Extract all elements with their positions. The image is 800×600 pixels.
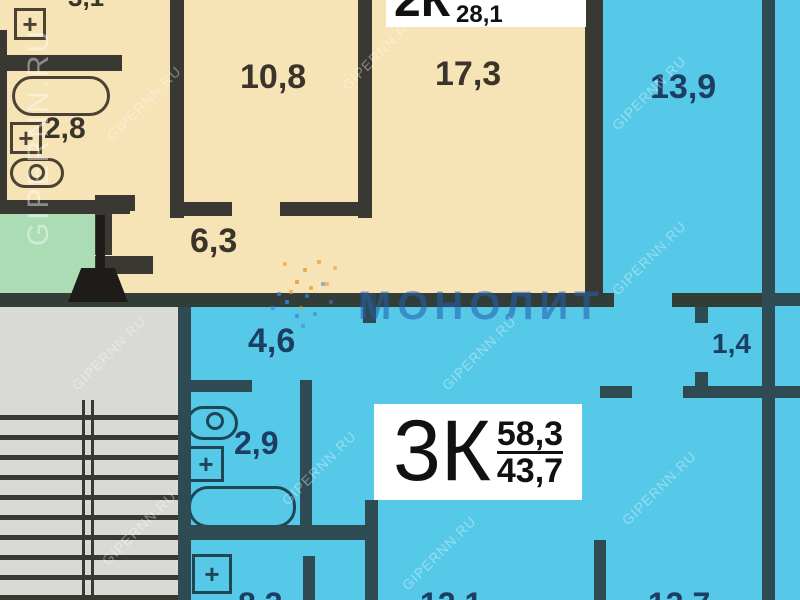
room-label-partial-bottom-right: 13,7 bbox=[648, 586, 710, 600]
wall bbox=[683, 386, 762, 398]
wall bbox=[600, 386, 632, 398]
room-label-6-3: 6,3 bbox=[190, 222, 237, 261]
apartment-2k-name: 2К bbox=[394, 0, 450, 25]
stair-railing-right bbox=[91, 400, 94, 600]
door-post bbox=[363, 293, 376, 323]
sink-cross-glyph: + bbox=[22, 9, 37, 40]
sink-icon: + bbox=[14, 8, 46, 40]
apartment-3k-name: 3К bbox=[393, 413, 491, 490]
wall bbox=[365, 500, 378, 600]
apartment-2k-badge: 2К 28,1 bbox=[386, 0, 586, 27]
sink-cross-glyph: + bbox=[18, 123, 33, 154]
wall bbox=[170, 0, 184, 218]
wall bbox=[170, 202, 232, 216]
wall bbox=[585, 0, 603, 300]
toilet-bowl-icon bbox=[28, 164, 45, 181]
wall bbox=[280, 202, 372, 216]
room-label-13-9: 13,9 bbox=[650, 68, 716, 107]
wall bbox=[775, 293, 800, 306]
wall bbox=[178, 307, 191, 600]
site-watermark: GIPERNN.RU bbox=[439, 313, 520, 394]
room-label-partial-top: 3,1 bbox=[68, 0, 104, 13]
room-label-2-9: 2,9 bbox=[234, 425, 278, 462]
room-label-1-4: 1,4 bbox=[712, 328, 751, 360]
site-watermark: GIPERNN.RU bbox=[399, 513, 480, 594]
site-watermark: GIPERNN.RU bbox=[609, 218, 690, 299]
wall bbox=[183, 525, 378, 540]
wall bbox=[762, 0, 775, 600]
bathtub-icon bbox=[188, 486, 296, 528]
kitchen-sink-icon: + bbox=[192, 554, 232, 594]
sink-cross-glyph: + bbox=[204, 559, 219, 590]
wall bbox=[303, 556, 315, 600]
room-label-partial-bottom-left: 8,3 bbox=[238, 586, 282, 600]
stair-steps bbox=[0, 400, 178, 600]
wall bbox=[186, 380, 252, 392]
floor-plan: + + + + 10,8 17,3 13,9 2,8 6,3 4,6 2,9 1… bbox=[0, 0, 800, 600]
sink-icon: + bbox=[188, 446, 224, 482]
room-label-4-6: 4,6 bbox=[248, 322, 295, 361]
bathtub-icon bbox=[12, 76, 110, 116]
wall-stub bbox=[695, 307, 708, 323]
room-label-partial-bottom-middle: 12,1 bbox=[420, 586, 482, 600]
wall bbox=[775, 386, 800, 398]
wall-divider bbox=[672, 293, 762, 307]
apartment-3k-living-area: 43,7 bbox=[497, 454, 563, 488]
site-watermark: GIPERNN.RU bbox=[619, 448, 700, 529]
sink-cross-glyph: + bbox=[198, 449, 213, 480]
wall bbox=[95, 195, 135, 211]
stair-railing-left bbox=[82, 400, 85, 600]
sink-icon: + bbox=[10, 122, 42, 154]
wall bbox=[358, 0, 372, 218]
wall-stub bbox=[695, 372, 708, 386]
wall bbox=[594, 540, 606, 600]
apartment-3k-total-area: 58,3 bbox=[497, 417, 563, 454]
apartment-2k-living-area: 28,1 bbox=[456, 3, 503, 27]
room-label-10-8: 10,8 bbox=[240, 58, 306, 97]
apartment-3k-badge: 3К 58,3 43,7 bbox=[374, 404, 582, 500]
toilet-bowl-icon bbox=[206, 412, 224, 430]
entrance-mark bbox=[96, 215, 105, 273]
wall bbox=[4, 55, 122, 71]
room-label-2-8: 2,8 bbox=[44, 112, 86, 146]
wall bbox=[300, 380, 312, 525]
room-label-17-3: 17,3 bbox=[435, 55, 501, 94]
